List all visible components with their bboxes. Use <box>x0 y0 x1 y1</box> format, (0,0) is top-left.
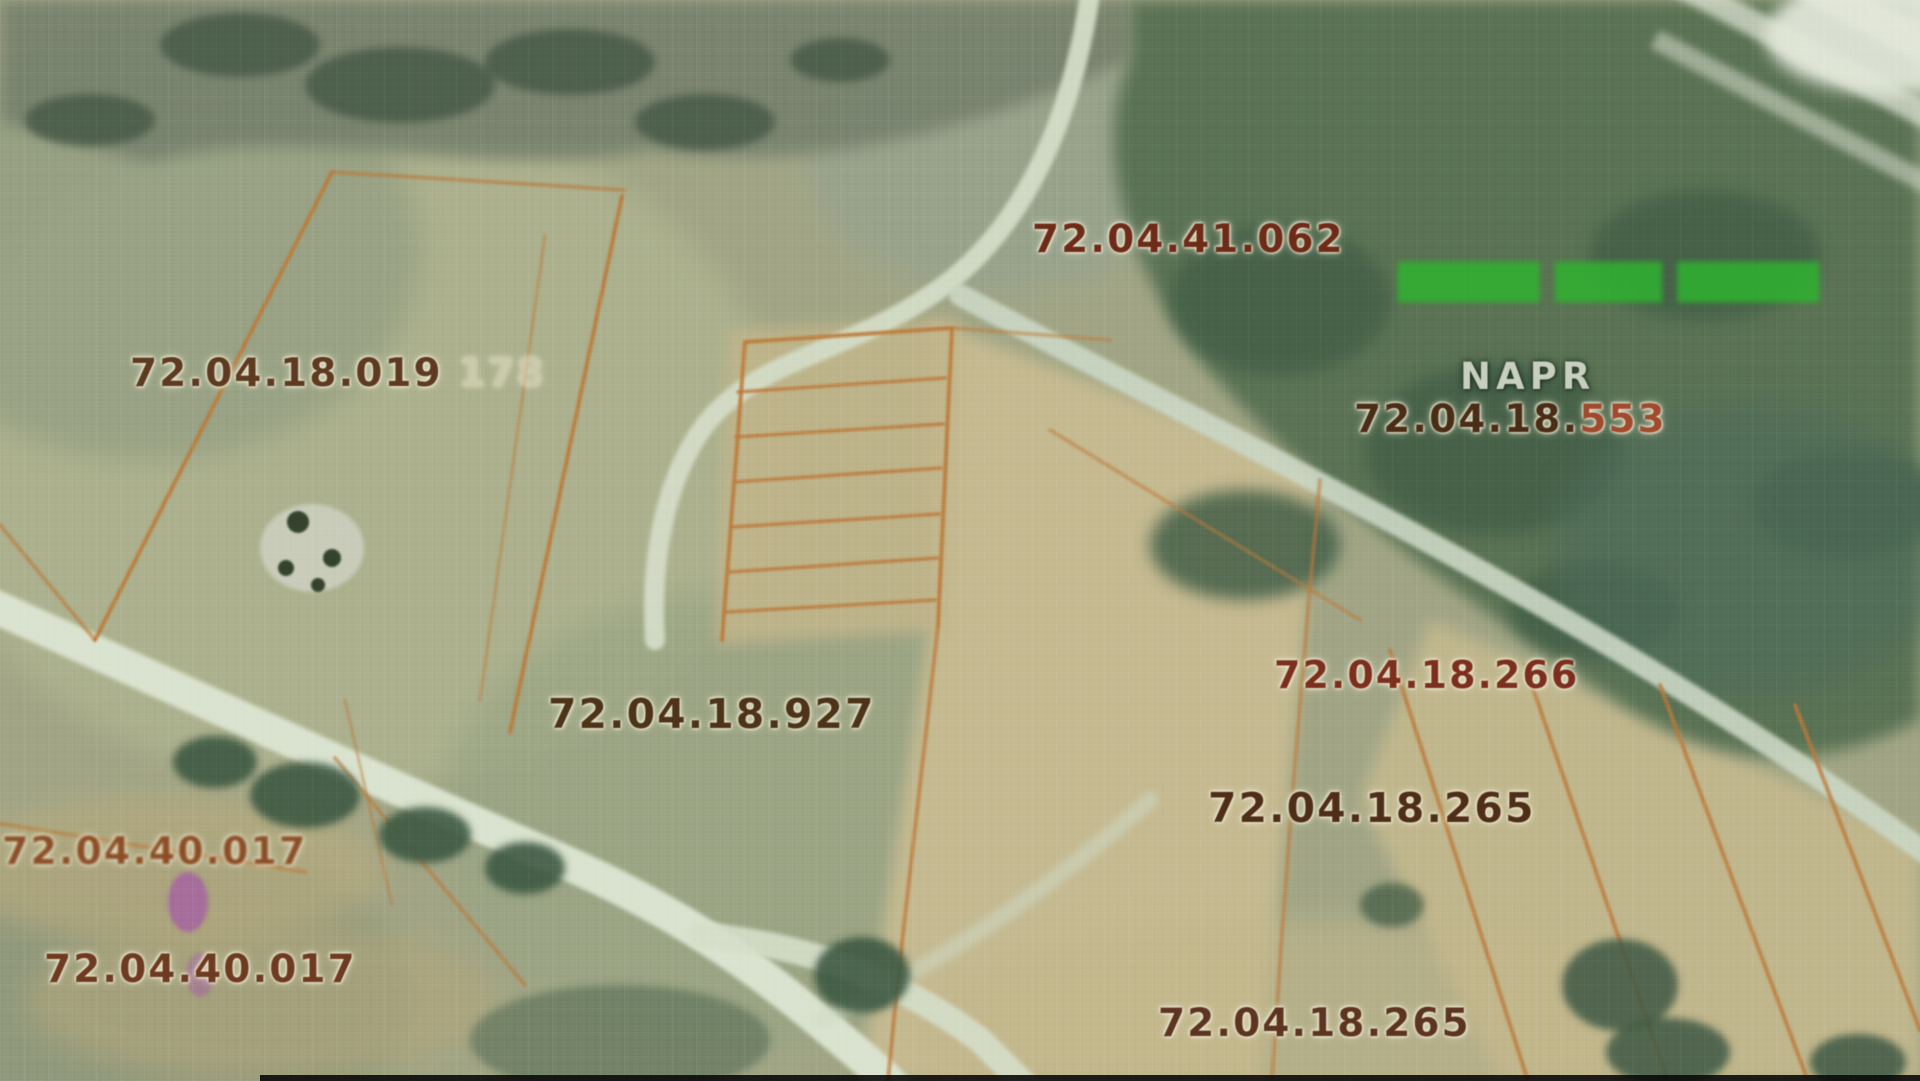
parcel-label-18-265-upper: 72.04.18.265 <box>1208 788 1535 829</box>
parcel-019-faint-marks: 178 <box>458 351 545 396</box>
parcel-019-code: 72.04.18.019 <box>130 351 443 396</box>
parcel-label-18-553: 72.04.18.553 <box>1354 400 1667 439</box>
parcel-553-prefix: 72.04.18. <box>1354 397 1579 442</box>
parcel-label-41-062: 72.04.41.062 <box>1032 220 1345 259</box>
parcel-label-40-017-lower: 72.04.40.017 <box>44 950 357 989</box>
aerial-imagery <box>0 0 1920 1081</box>
satellite-map-view[interactable]: 72.04.41.062 ▆▆▆▆ ▆▆▆ ▆▆▆▆ NAPR 72.04.18… <box>0 0 1920 1081</box>
green-highlight-label: ▆▆▆▆ ▆▆▆ ▆▆▆▆ <box>1398 252 1819 298</box>
parcel-label-40-017-upper: 72.04.40.017 <box>2 832 307 870</box>
napr-watermark-label: NAPR <box>1460 358 1595 395</box>
parcel-553-suffix: 553 <box>1579 397 1666 442</box>
parcel-label-18-265-lower: 72.04.18.265 <box>1158 1004 1471 1043</box>
parcel-label-18-266: 72.04.18.266 <box>1274 656 1579 694</box>
parcel-label-18-927: 72.04.18.927 <box>548 694 875 735</box>
parcel-label-18-019: 72.04.18.019 178 <box>130 354 546 393</box>
